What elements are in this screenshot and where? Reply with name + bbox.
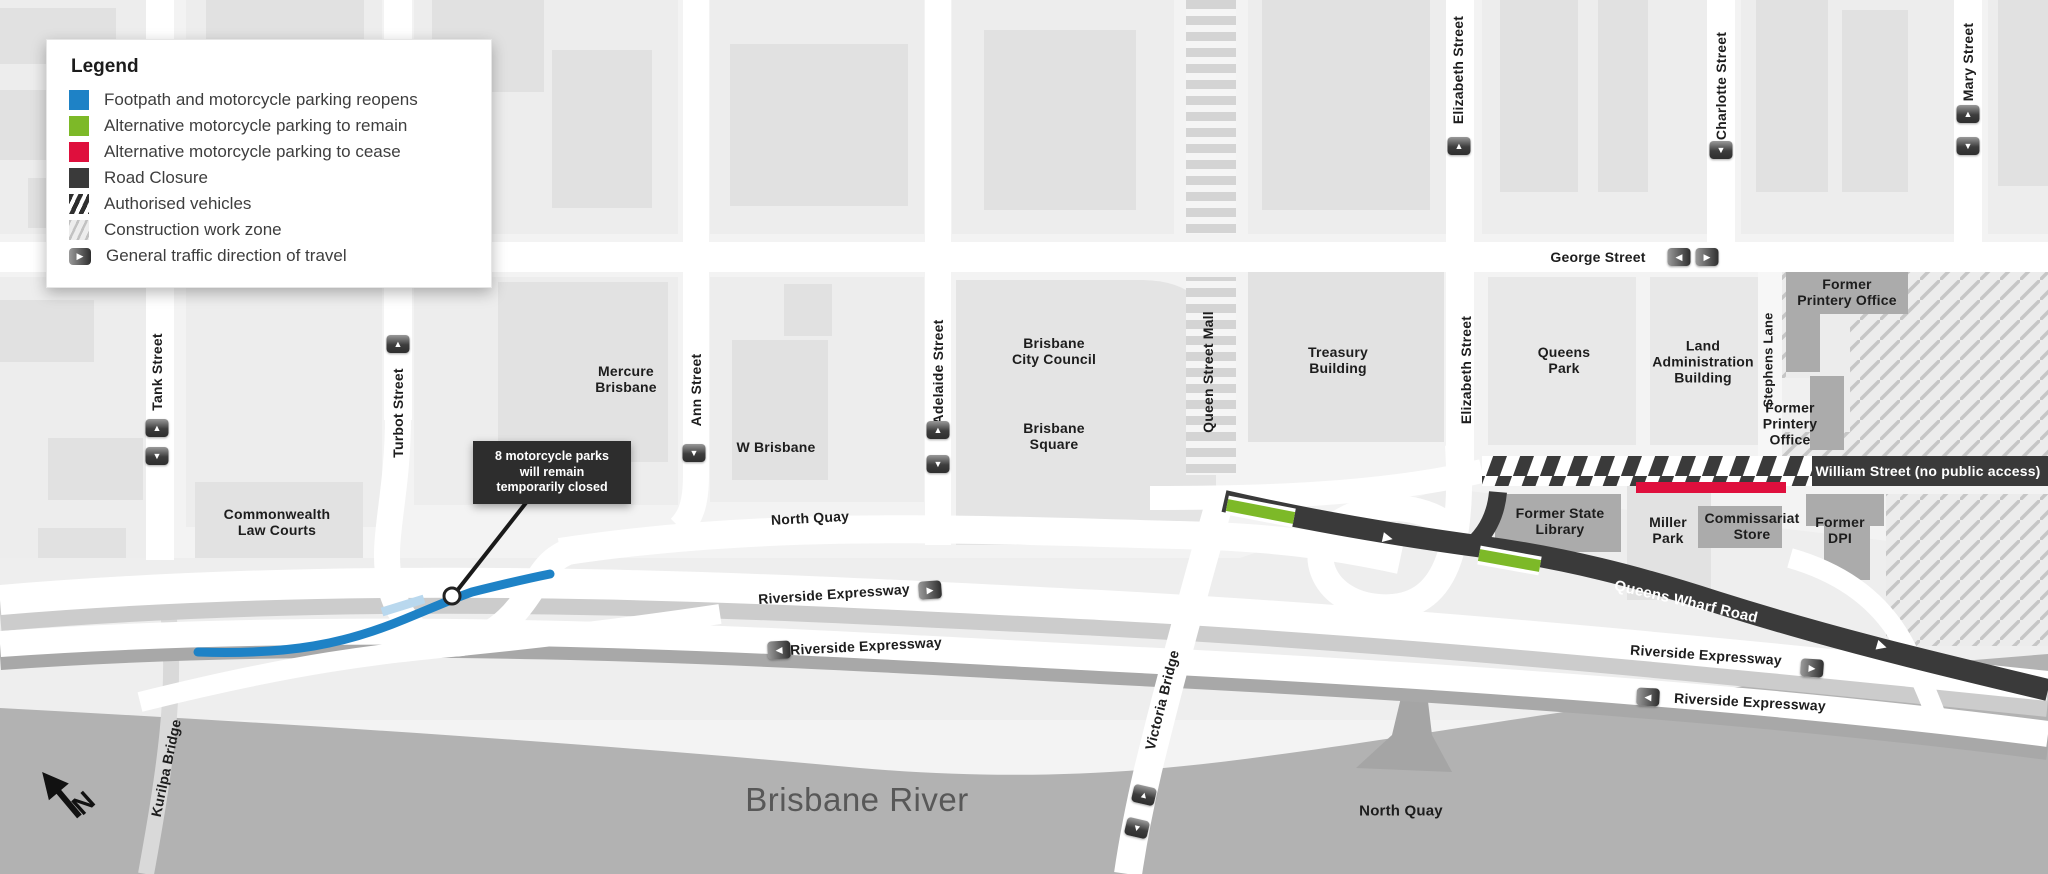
traffic-arrow-ann-down: ▼ [683,444,706,462]
legend-title: Legend [71,56,469,78]
road-closure-swatch-icon [69,168,89,188]
legend-item-cease: Alternative motorcycle parking to cease [69,139,469,165]
traffic-arrow-mary-down: ▼ [1957,137,1980,155]
north-compass: N [24,756,114,834]
legend-item-label: Footpath and motorcycle parking reopens [104,90,418,110]
traffic-arrow-elizabeth-up: ▲ [1448,137,1471,155]
authorised-hatch-icon [69,194,89,214]
legend: Legend Footpath and motorcycle parking r… [46,39,492,288]
legend-item-reopens: Footpath and motorcycle parking reopens [69,87,469,113]
traffic-arrow-mary-up: ▲ [1957,105,1980,123]
traffic-arrow-riverside-1-right: ▶ [918,580,942,600]
legend-item-road-closure: Road Closure [69,165,469,191]
legend-item-label: Alternative motorcycle parking to cease [104,142,401,162]
traffic-arrow-george-left: ◀ [1668,248,1691,266]
legend-item-direction: ▶ General traffic direction of travel [69,243,469,269]
traffic-arrow-tank-up: ▲ [146,419,169,437]
legend-item-label: Alternative motorcycle parking to remain [104,116,407,136]
remain-swatch-icon [69,116,89,136]
william-street-closed-band [1812,456,2048,486]
parking-cease-bar [1636,482,1786,493]
traffic-arrow-turbot-up: ▲ [387,335,410,353]
legend-item-label: Road Closure [104,168,208,188]
motorcycle-parks-callout: 8 motorcycle parks will remain temporari… [473,441,631,504]
cease-swatch-icon [69,142,89,162]
traffic-arrow-riverside-4-left: ◀ [1636,687,1660,706]
traffic-arrow-adelaide-up: ▲ [927,421,950,439]
legend-item-label: Authorised vehicles [104,194,251,214]
legend-item-construction: Construction work zone [69,217,469,243]
legend-item-label: General traffic direction of travel [106,246,347,266]
legend-item-label: Construction work zone [104,220,282,240]
reopens-swatch-icon [69,90,89,110]
traffic-arrow-riverside-3-right: ▶ [1800,658,1824,678]
traffic-arrow-charlotte-down: ▼ [1710,141,1733,159]
construction-hatch-icon [69,220,89,240]
construction-zone-lower [1886,494,2048,646]
traffic-arrow-george-right: ▶ [1696,248,1719,266]
direction-arrow-icon: ▶ [69,248,91,265]
traffic-map: Legend Footpath and motorcycle parking r… [0,0,2048,874]
traffic-arrow-riverside-2-left: ◀ [767,640,791,659]
traffic-arrow-adelaide-down: ▼ [927,455,950,473]
legend-item-authorised: Authorised vehicles [69,191,469,217]
legend-item-remain: Alternative motorcycle parking to remain [69,113,469,139]
william-street-authorised-vehicles [1482,456,1812,486]
traffic-arrow-tank-down: ▼ [146,447,169,465]
